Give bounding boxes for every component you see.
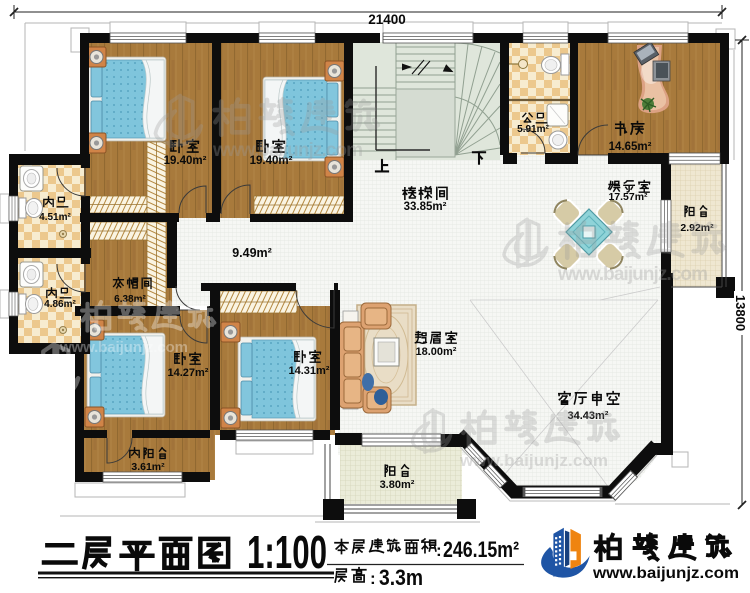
svg-text:9.49m²: 9.49m² [232, 246, 272, 260]
svg-text:13800: 13800 [733, 295, 748, 331]
svg-text:1:100: 1:100 [247, 526, 327, 578]
svg-text:www.baijunjz.com: www.baijunjz.com [459, 451, 608, 470]
svg-text:www.baijunjz.com: www.baijunjz.com [59, 339, 188, 356]
svg-text:www.baijunjz.com: www.baijunjz.com [212, 140, 363, 161]
svg-text:14.27m²: 14.27m² [168, 367, 209, 379]
svg-text::: : [370, 569, 376, 588]
svg-text:www.baijunjz.com: www.baijunjz.com [592, 565, 739, 582]
svg-text:21400: 21400 [368, 12, 406, 27]
svg-text::: : [436, 541, 442, 560]
svg-text:18.00m²: 18.00m² [416, 346, 457, 358]
svg-text:4.51m²: 4.51m² [39, 212, 71, 223]
svg-text:17.57m²: 17.57m² [608, 191, 648, 203]
svg-text:33.85m²: 33.85m² [404, 201, 447, 213]
svg-text:246.15m²: 246.15m² [443, 537, 519, 562]
svg-text:14.31m²: 14.31m² [289, 365, 330, 377]
svg-text:3.80m²: 3.80m² [380, 479, 415, 491]
svg-text:4.86m²: 4.86m² [44, 299, 76, 310]
svg-text:www.baijunjz.com: www.baijunjz.com [557, 264, 708, 285]
svg-text:19.40m²: 19.40m² [164, 155, 207, 167]
svg-text:14.65m²: 14.65m² [609, 141, 652, 153]
svg-text:3.3m: 3.3m [379, 565, 423, 590]
svg-text:5.91m²: 5.91m² [517, 124, 549, 135]
svg-text:3.61m²: 3.61m² [131, 461, 165, 473]
